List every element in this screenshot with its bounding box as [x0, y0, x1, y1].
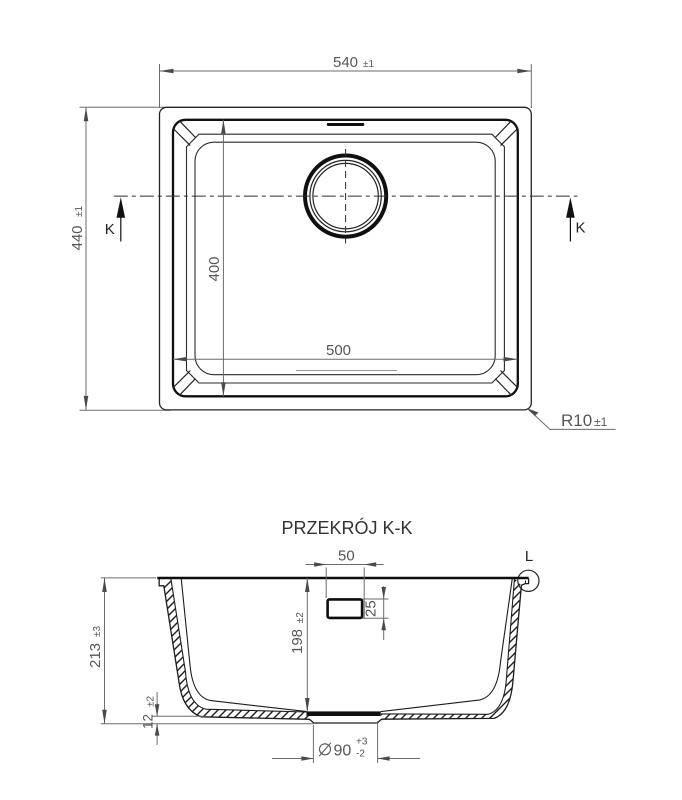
- svg-text:198: 198: [289, 629, 306, 654]
- svg-text:500: 500: [326, 342, 351, 359]
- svg-text:K: K: [576, 220, 586, 237]
- svg-text:PRZEKRÓJ K-K: PRZEKRÓJ K-K: [281, 517, 412, 538]
- svg-text:-2: -2: [356, 749, 365, 760]
- svg-text:±1: ±1: [74, 206, 85, 217]
- svg-text:±1: ±1: [594, 415, 608, 429]
- svg-text:±3: ±3: [92, 626, 103, 637]
- svg-text:50: 50: [338, 548, 355, 565]
- svg-text:540: 540: [333, 54, 358, 71]
- svg-text:±2: ±2: [295, 612, 306, 623]
- svg-text:12: 12: [141, 714, 156, 729]
- svg-text:K: K: [105, 221, 115, 238]
- svg-text:R10: R10: [561, 411, 592, 430]
- svg-text:±2: ±2: [146, 696, 157, 707]
- svg-text:25: 25: [363, 600, 380, 617]
- svg-text:400: 400: [206, 256, 223, 281]
- svg-text:±1: ±1: [363, 59, 374, 70]
- svg-text:440: 440: [69, 225, 86, 250]
- svg-text:+3: +3: [356, 737, 368, 748]
- svg-text:90: 90: [334, 742, 352, 759]
- svg-text:L: L: [525, 548, 533, 565]
- svg-text:213: 213: [87, 643, 104, 668]
